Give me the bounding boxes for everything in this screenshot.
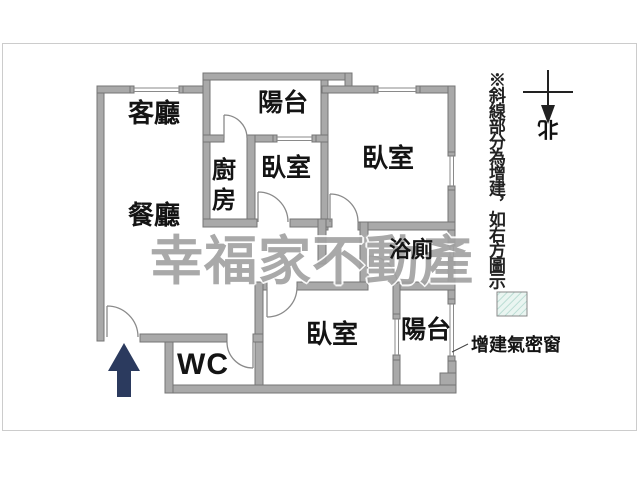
room-label-living: 客廳	[128, 100, 180, 127]
compass-north-label: 北	[534, 117, 562, 139]
room-label-bathroom: 浴廁	[389, 238, 433, 261]
room-label-balcony-top: 陽台	[258, 90, 308, 116]
room-label-kitchen: 廚房	[212, 156, 238, 216]
entrance-arrow-icon	[108, 343, 140, 397]
floorplan-canvas: 幸福家不動產 客廳 餐廳 陽台 廚房 臥室 臥室 浴廁 臥室 陽台 WC 增建氣…	[0, 0, 640, 480]
leader-line	[452, 344, 468, 352]
room-label-balcony-bottom: 陽台	[401, 317, 451, 343]
compass-icon	[523, 70, 573, 124]
room-label-bedroom-center: 臥室	[261, 155, 311, 181]
added-window-annotation: 增建氣密窗	[471, 336, 561, 355]
side-note-vertical: ※斜線部分為增建，如右方圖示	[486, 71, 504, 296]
room-label-dining: 餐廳	[128, 202, 180, 229]
room-label-bedroom-right: 臥室	[362, 145, 414, 172]
room-label-wc: WC	[177, 349, 229, 381]
room-label-bedroom-bottom: 臥室	[306, 321, 358, 348]
